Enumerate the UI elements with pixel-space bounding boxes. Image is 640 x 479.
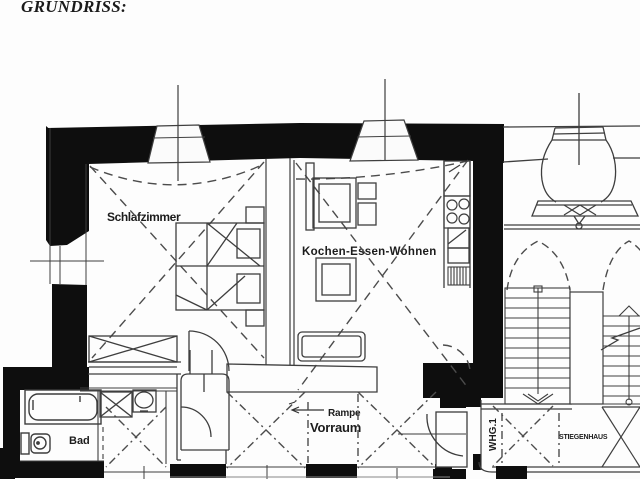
- svg-text:Vorraum: Vorraum: [310, 420, 361, 435]
- svg-text:STIEGENHAUS: STIEGENHAUS: [559, 434, 608, 441]
- svg-text:GRUNDRISS:: GRUNDRISS:: [21, 0, 127, 16]
- svg-text:Kochen-Essen-Wohnen: Kochen-Essen-Wohnen: [302, 246, 437, 258]
- svg-text:Bad: Bad: [69, 435, 90, 447]
- svg-text:Rampe: Rampe: [328, 408, 361, 419]
- svg-text:WHG.1: WHG.1: [488, 418, 499, 451]
- svg-text:Schlafzimmer: Schlafzimmer: [107, 210, 181, 224]
